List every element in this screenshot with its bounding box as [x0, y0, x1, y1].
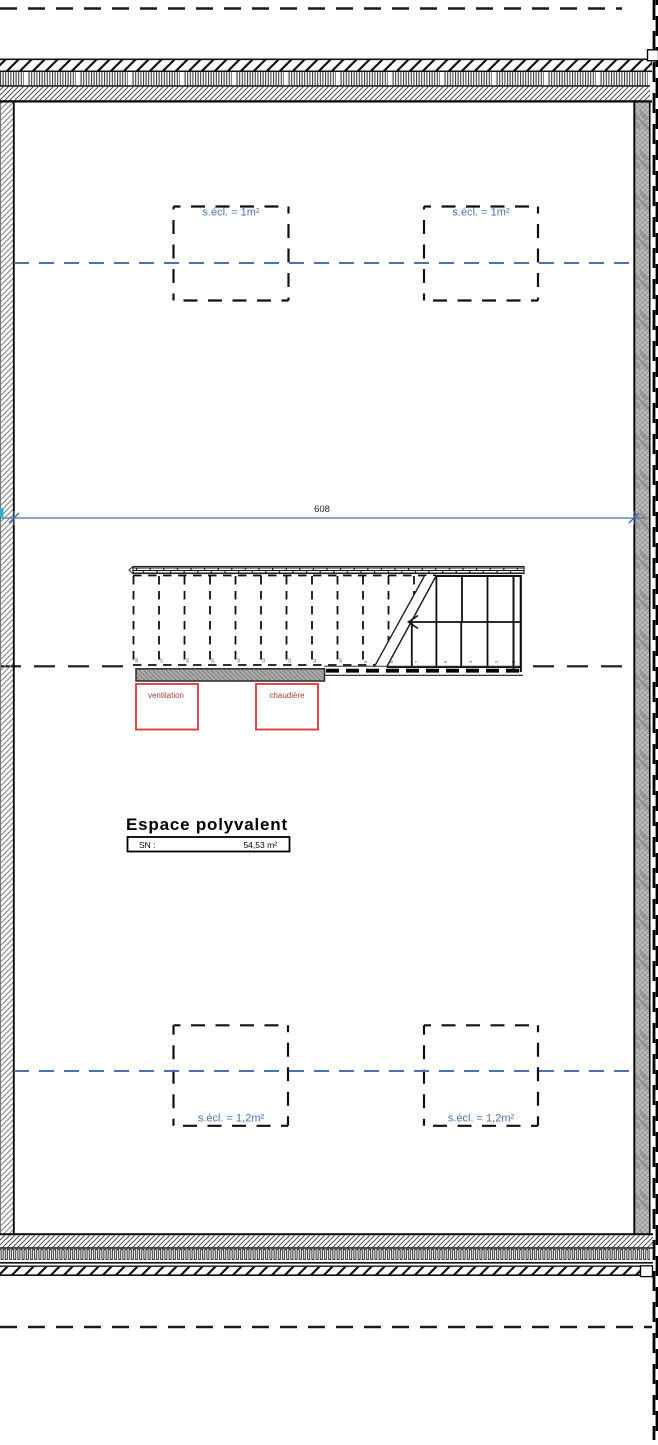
svg-text:54,53 m²: 54,53 m² [243, 840, 277, 850]
svg-text:16: 16 [185, 658, 190, 663]
svg-text:10: 10 [338, 658, 343, 663]
svg-text:s.écl. = 1m²: s.écl. = 1m² [202, 207, 259, 219]
svg-text:s.écl. = 1m²: s.écl. = 1m² [452, 207, 509, 219]
svg-text:12: 12 [287, 658, 292, 663]
svg-text:s.écl. = 1,2m²: s.écl. = 1,2m² [448, 1113, 515, 1125]
svg-text:15: 15 [210, 658, 215, 663]
svg-text:Espace polyvalent: Espace polyvalent [126, 815, 288, 834]
svg-text:SN :: SN : [139, 840, 156, 850]
svg-text:608: 608 [314, 504, 330, 515]
svg-text:18: 18 [134, 658, 139, 663]
svg-text:11: 11 [312, 658, 317, 663]
svg-text:chaudière: chaudière [269, 691, 305, 700]
svg-text:17: 17 [159, 658, 164, 663]
svg-text:ventilation: ventilation [148, 691, 184, 700]
svg-text:s.écl. = 1,2m²: s.écl. = 1,2m² [198, 1113, 265, 1125]
svg-text:14: 14 [236, 658, 241, 663]
svg-text:13: 13 [261, 658, 266, 663]
